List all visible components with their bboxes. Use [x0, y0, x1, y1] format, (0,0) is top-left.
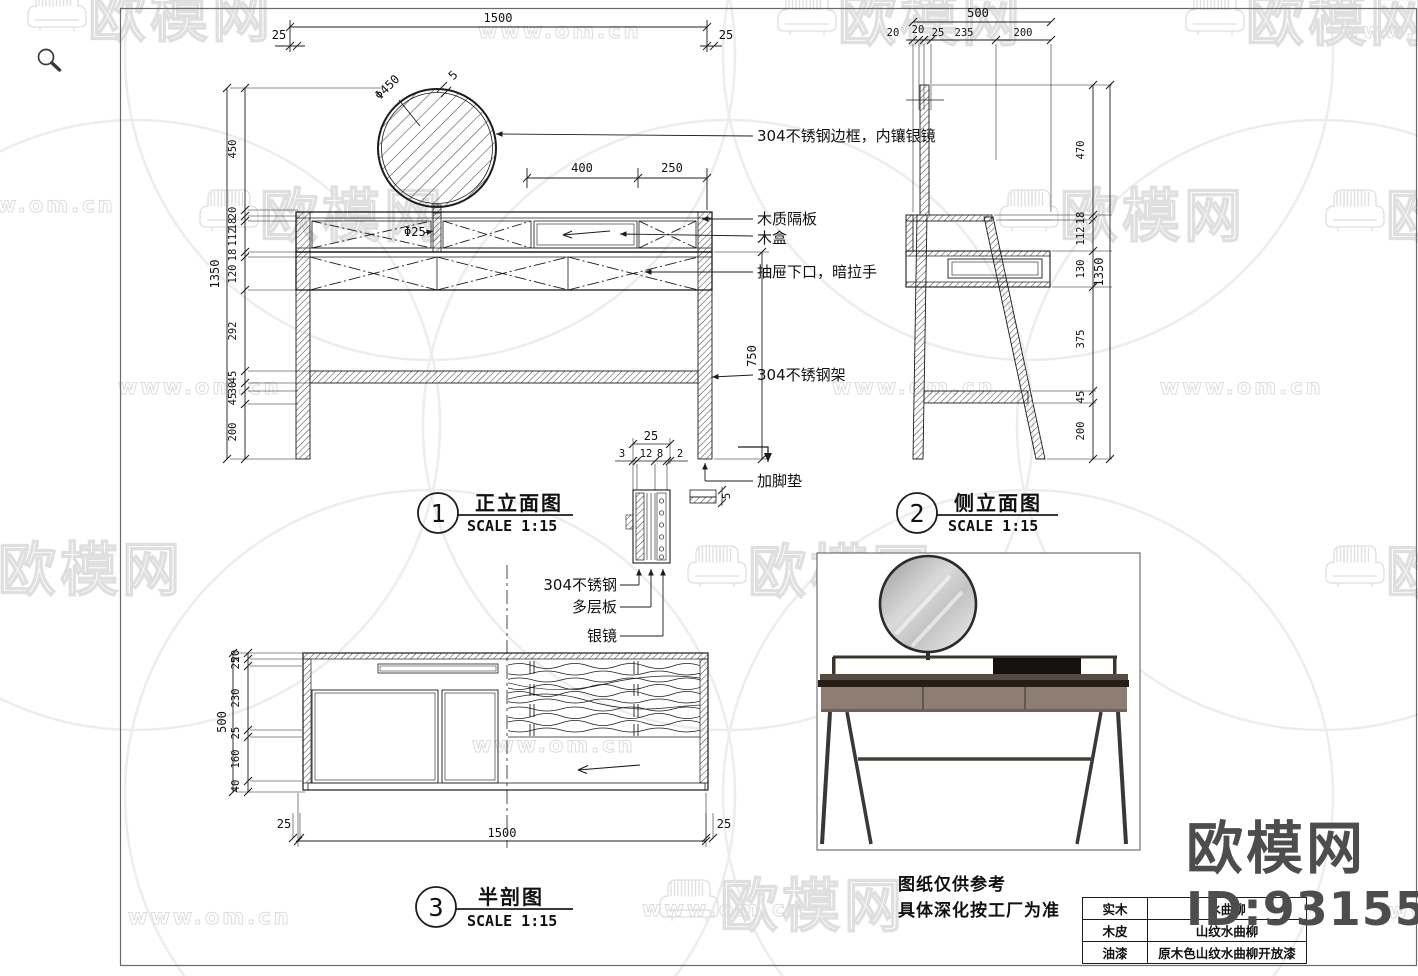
- dim-label: 1350: [1092, 258, 1106, 287]
- pole-diameter-label: Φ25: [404, 225, 426, 239]
- dim-label: 25: [230, 727, 242, 740]
- dim-label: 25: [277, 817, 291, 831]
- table-row: 油漆 原木色山纹水曲柳开放漆: [1083, 942, 1307, 964]
- side-mirror-pole: [920, 85, 929, 215]
- dim-label: 18: [227, 249, 239, 262]
- dim-label: 160: [230, 750, 242, 769]
- side-title: 2 侧立面图 SCALE 1:15: [897, 491, 1058, 535]
- dim-label: 1500: [488, 826, 517, 840]
- dim-label: 400: [571, 161, 593, 175]
- dim-label: 2: [677, 448, 683, 460]
- side-right-dim-labels: 470 18 112 130 375 45 200 1350: [1075, 141, 1106, 441]
- side-desk-body: [906, 85, 1050, 459]
- dim-label: 470: [1075, 141, 1087, 160]
- drawer-slide-arrow-icon: [578, 765, 640, 774]
- front-desk-body: [296, 212, 712, 459]
- front-mirror: [378, 82, 496, 213]
- dim-label: 20: [887, 27, 900, 39]
- dim-label: 25: [230, 657, 242, 670]
- label-steel-frame: 304不锈钢架: [757, 366, 846, 384]
- magnifier-cursor-icon: [39, 50, 60, 71]
- front-leaders: [496, 134, 753, 481]
- dim-label: 230: [230, 689, 242, 708]
- front-elevation-view: 1500 25 25 Φ450 5 400 250: [208, 11, 936, 645]
- dim-label: 18: [1075, 212, 1087, 225]
- dim-label: 45: [227, 371, 239, 384]
- dim-label: 25: [717, 817, 731, 831]
- side-stretcher: [924, 391, 1028, 403]
- dim-label: 450: [227, 140, 239, 159]
- dim-label: 120: [227, 265, 239, 284]
- dim-label: 25: [932, 27, 945, 39]
- side-elevation-view: 500 20 20 25 235 200: [887, 6, 1114, 535]
- front-stretcher: [310, 371, 698, 383]
- dim-label: 250: [661, 161, 683, 175]
- render-mirror: [880, 556, 976, 652]
- label-wood-shelf: 木质隔板: [757, 210, 817, 228]
- dim-label: 112: [1075, 227, 1087, 246]
- material-label: 油漆: [1083, 942, 1148, 964]
- dim-label: 292: [227, 322, 239, 341]
- dim-label: 8: [657, 448, 663, 460]
- dim-label: 200: [1014, 27, 1033, 39]
- label-mirror-frame: 304不锈钢边框，内镶银镜: [757, 127, 936, 145]
- mirror-diameter-label: Φ450: [372, 72, 402, 102]
- disclaimer-line2: 具体深化按工厂为准: [898, 898, 1060, 924]
- view-scale: SCALE 1:15: [467, 517, 557, 535]
- wood-grain-hatch: [505, 664, 729, 733]
- grain-dividers: [530, 661, 638, 736]
- view-scale: SCALE 1:15: [467, 912, 557, 930]
- section-left-dim-chain: [229, 649, 305, 796]
- dim-label: 40: [230, 780, 242, 793]
- dim-label: 500: [215, 711, 229, 733]
- dim-label: 12: [640, 448, 653, 460]
- dim-label: 3: [619, 448, 625, 460]
- dim-label: 375: [1075, 330, 1087, 349]
- mirror-slide-arrow-icon: [563, 231, 610, 238]
- dim-label: 20: [227, 207, 239, 220]
- front-left-dim-labels: 450 20 18 112 18 120 292 45 30 45 200 13…: [208, 140, 239, 442]
- dim-label: 1350: [208, 260, 222, 289]
- front-left-leg: [296, 290, 310, 459]
- dim-label: 20: [912, 24, 925, 36]
- dim-label: 5: [721, 493, 733, 499]
- dim-label: 1500: [484, 11, 513, 25]
- label-foot-pad: 加脚垫: [757, 472, 802, 490]
- view-title: 半剖图: [478, 885, 544, 909]
- dim-label: 200: [1075, 422, 1087, 441]
- view-number: 1: [430, 499, 445, 528]
- dim-label: 750: [745, 345, 759, 367]
- render-preview: [817, 553, 1140, 850]
- front-title: 1 正立面图 SCALE 1:15: [418, 491, 573, 535]
- material-value: 原木色山纹水曲柳开放漆: [1148, 942, 1307, 964]
- section-title: 3 半剖图 SCALE 1:15: [416, 885, 573, 930]
- dim-label: 130: [1075, 260, 1087, 279]
- dim-label: 25: [644, 429, 658, 443]
- view-title: 正立面图: [475, 491, 563, 515]
- dim-label: 112: [227, 228, 239, 247]
- mirror-frame-detail: [615, 438, 772, 636]
- half-section-view: 20 25 230 25 160 40 500: [215, 565, 731, 930]
- label-detail-plywood: 多层板: [572, 598, 617, 616]
- label-wood-box: 木盒: [757, 229, 787, 247]
- disclaimer-line1: 图纸仅供参考: [898, 872, 1060, 898]
- material-label: 实木: [1083, 898, 1148, 920]
- model-id: ID:931553: [1186, 882, 1418, 936]
- label-drawer-pull: 抽屉下口，暗拉手: [757, 263, 877, 281]
- dim-label: 25: [719, 28, 733, 42]
- front-right-leg: [698, 290, 712, 459]
- dim-label: 45: [1075, 391, 1087, 404]
- dim-label: 200: [227, 423, 239, 442]
- dim-label: 500: [967, 6, 989, 20]
- view-number: 2: [909, 499, 924, 528]
- site-logo: 欧模网: [1186, 818, 1366, 880]
- label-detail-mirror: 银镜: [587, 627, 617, 645]
- dim-label: 30: [227, 382, 239, 395]
- view-scale: SCALE 1:15: [948, 517, 1038, 535]
- dim-label: 45: [227, 393, 239, 406]
- mirror-thickness-label: 5: [446, 68, 461, 83]
- view-title: 侧立面图: [954, 491, 1042, 515]
- cad-sheet: 欧模网 www.om.cn: [0, 0, 1418, 976]
- dim-label: 25: [272, 28, 286, 42]
- section-body: [303, 565, 729, 848]
- label-detail-steel: 304不锈钢: [543, 576, 617, 594]
- material-label: 木皮: [1083, 920, 1148, 942]
- view-number: 3: [428, 893, 443, 922]
- dim-label: 235: [955, 27, 974, 39]
- disclaimer-notes: 图纸仅供参考 具体深化按工厂为准: [898, 872, 1060, 924]
- render-desk: [818, 674, 1129, 712]
- section-left-dim-labels: 20 25 230 25 160 40 500: [215, 650, 242, 793]
